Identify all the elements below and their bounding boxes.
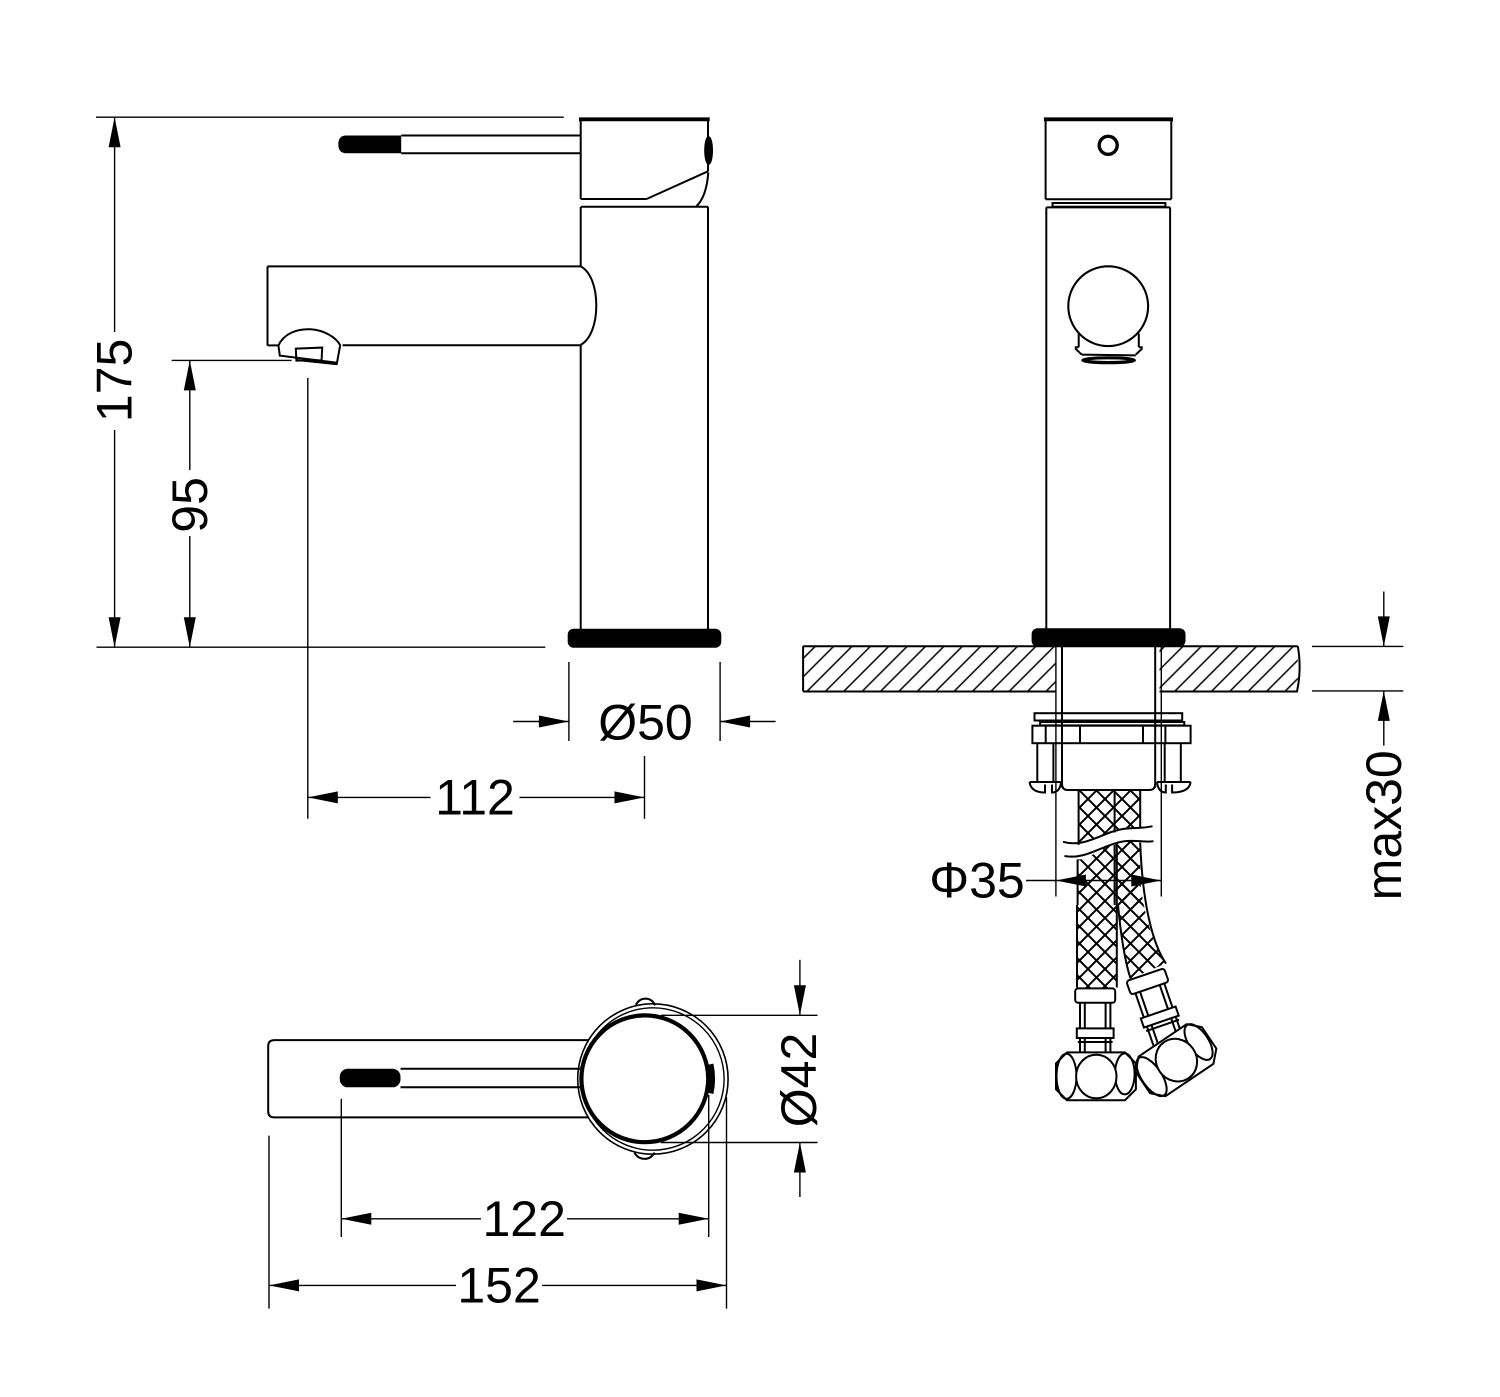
svg-text:Ø50: Ø50 bbox=[598, 695, 693, 751]
svg-text:122: 122 bbox=[482, 1191, 565, 1247]
svg-text:175: 175 bbox=[87, 339, 143, 422]
svg-text:152: 152 bbox=[457, 1257, 540, 1313]
svg-text:max30: max30 bbox=[1356, 750, 1412, 900]
svg-text:112: 112 bbox=[435, 769, 515, 825]
svg-text:Φ35: Φ35 bbox=[929, 853, 1025, 909]
svg-text:95: 95 bbox=[162, 477, 218, 533]
svg-text:Ø42: Ø42 bbox=[771, 1033, 827, 1128]
